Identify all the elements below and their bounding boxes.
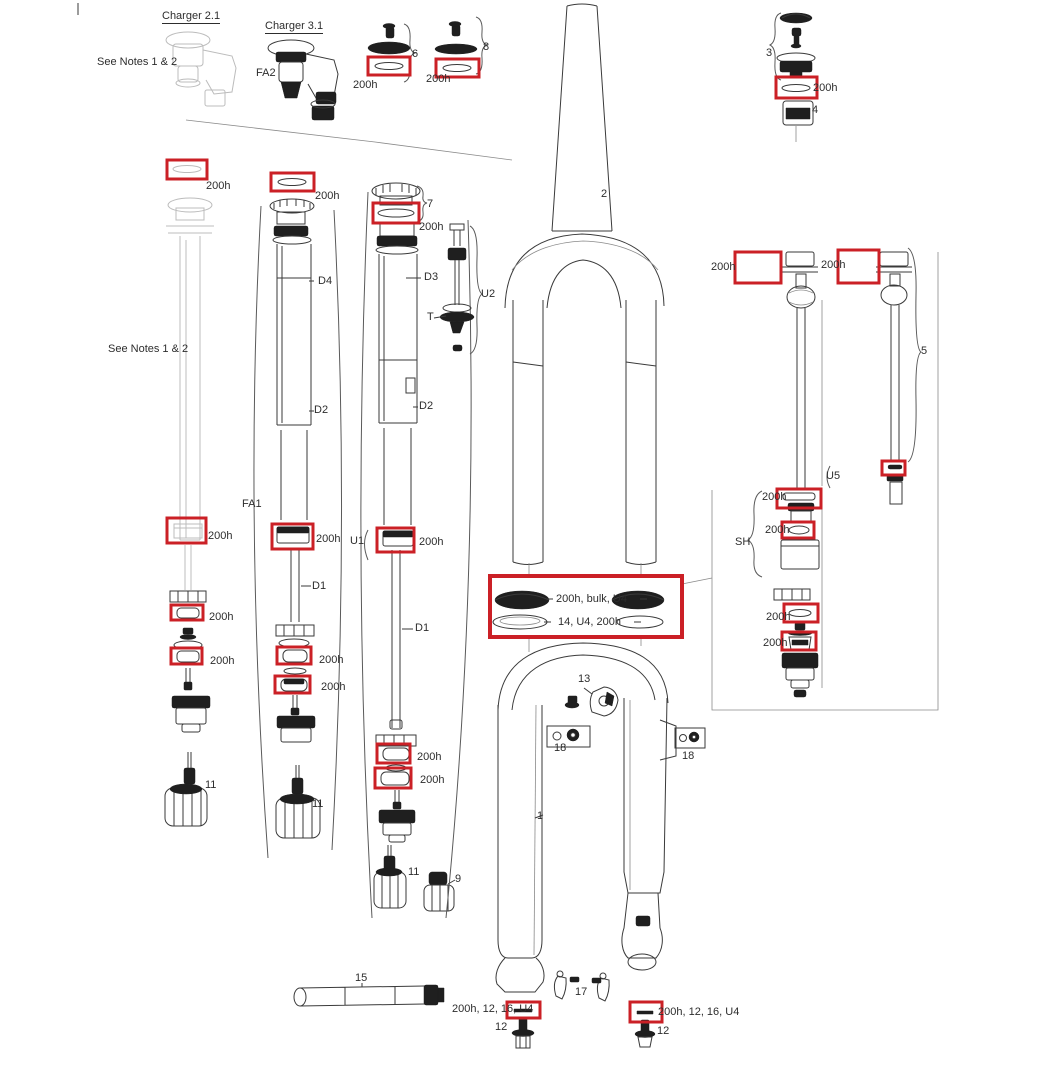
thru-axle-15 [294,983,444,1006]
charger21-ghost-assembly [166,32,236,106]
foot-bolt-12-right [635,1011,655,1047]
service-highlight-box [838,250,879,283]
brace-sh [748,491,762,577]
bolt-callout-18-left [547,726,590,747]
rebound-knob-11c [374,845,406,908]
rebound-knob-11a [165,752,207,826]
stanchion-left [513,300,543,565]
lower-legs [496,643,676,992]
column2-right-bracket [332,210,342,850]
damper-column1-ghost [166,166,214,541]
damper-column1-lower-parts [170,524,210,732]
service-highlight-box [271,173,314,191]
u5-bracket [827,466,830,488]
brace-item-5 [908,248,921,462]
crown [505,234,664,308]
parts-diagram: Charger 2.1Charger 3.1See Notes 1 & 2FA2… [0,0,1064,1068]
diagram-line-art [0,0,1064,1068]
brace-item-3 [770,13,781,80]
column2-left-bracket [254,206,268,858]
u1-bracket [365,530,369,560]
dust-seal-kit [493,591,664,629]
rebound-knob-11b [276,765,320,838]
topcap-item-8 [435,22,477,72]
fender-bracket-13 [565,687,618,716]
bolt-callout-18-right [675,728,705,748]
stanchion-right [626,300,656,565]
hose-guides-17 [554,971,609,1001]
steerer-tube [552,4,612,231]
foot-bolt-12-left [512,1009,534,1048]
service-highlight-box [735,252,781,283]
charger31-assembly [268,40,338,120]
topcap-item-6 [368,24,410,70]
u2-shaft-assembly [434,224,474,351]
brace-u2 [470,226,482,354]
